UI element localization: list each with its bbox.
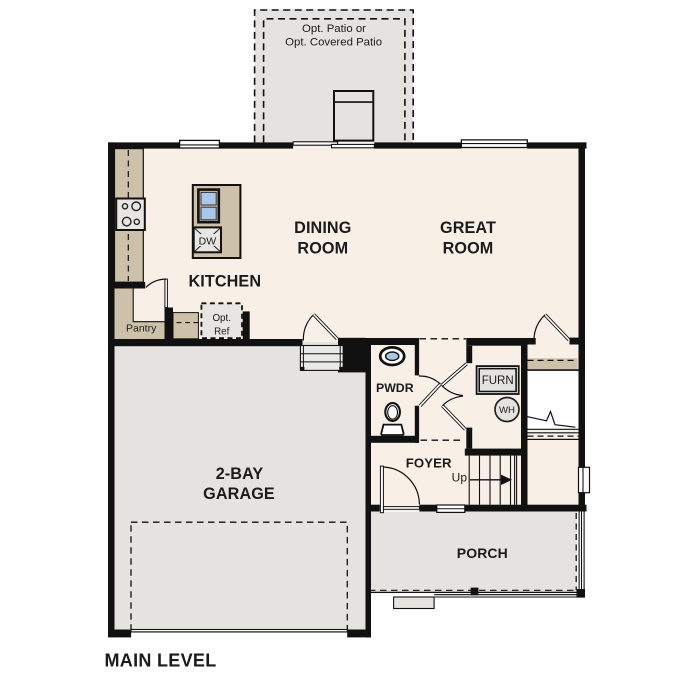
svg-text:KITCHEN: KITCHEN xyxy=(188,273,261,291)
svg-text:WH: WH xyxy=(499,405,515,416)
svg-text:2-BAY: 2-BAY xyxy=(216,465,264,483)
svg-text:DW: DW xyxy=(199,235,217,247)
svg-text:FOYER: FOYER xyxy=(406,455,452,470)
svg-text:ROOM: ROOM xyxy=(443,240,494,258)
svg-text:Up: Up xyxy=(452,471,468,485)
svg-text:PORCH: PORCH xyxy=(457,545,508,561)
svg-text:Opt. Covered Patio: Opt. Covered Patio xyxy=(285,36,382,48)
svg-text:MAIN LEVEL: MAIN LEVEL xyxy=(105,651,217,671)
svg-text:Pantry: Pantry xyxy=(126,323,157,335)
svg-text:ROOM: ROOM xyxy=(297,240,348,258)
svg-text:PWDR: PWDR xyxy=(376,381,414,395)
svg-text:Ref: Ref xyxy=(214,326,230,337)
svg-text:FURN: FURN xyxy=(482,375,514,387)
svg-text:Opt. Patio or: Opt. Patio or xyxy=(302,23,366,35)
svg-text:GARAGE: GARAGE xyxy=(203,485,275,503)
svg-text:DINING: DINING xyxy=(294,219,351,237)
svg-text:GREAT: GREAT xyxy=(440,219,496,237)
svg-text:Opt.: Opt. xyxy=(212,313,231,324)
